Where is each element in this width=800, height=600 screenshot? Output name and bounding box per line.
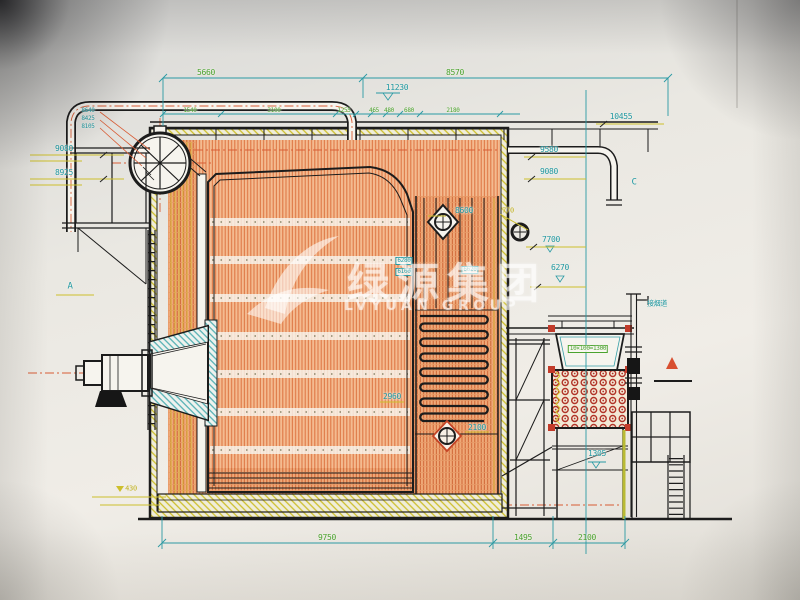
dimension-label: 8570 xyxy=(446,69,464,77)
dimension-label: 1495 xyxy=(514,534,532,542)
dimension-label: 1255 xyxy=(337,108,350,114)
dimension-label: 7700 xyxy=(542,236,560,244)
dimension-label: 2960 xyxy=(383,393,401,401)
dimension-label: 1305 xyxy=(588,450,606,458)
dimension-label: 6620 xyxy=(461,266,478,274)
dimension-label: 465 xyxy=(369,108,379,114)
dimension-labels-layer: 5660857011230154031001255465480680218010… xyxy=(0,0,800,600)
section-marker-c: C xyxy=(631,179,636,188)
photographed-boiler-drawing: 5660857011230154031001255465480680218010… xyxy=(0,0,800,600)
dimension-label: 2180 xyxy=(446,108,459,114)
dimension-label: 8425 xyxy=(81,116,94,122)
dimension-label: 8925 xyxy=(55,169,73,177)
dimension-label: 770 xyxy=(502,208,514,215)
dimension-label: 1540 xyxy=(183,108,196,114)
dimension-label: 2100 xyxy=(468,424,486,432)
dimension-label: 9580 xyxy=(540,146,558,154)
section-marker-a: A xyxy=(67,283,72,292)
dimension-label: 480 xyxy=(384,108,394,114)
dimension-label: 8600 xyxy=(455,207,473,215)
dimension-label: 9080 xyxy=(55,145,73,153)
dimension-label: 8640 xyxy=(81,108,94,114)
dimension-label: 680 xyxy=(404,108,414,114)
dimension-label: 2100 xyxy=(578,534,596,542)
dimension-label: 11230 xyxy=(386,84,409,92)
dimension-label: 6280 xyxy=(395,257,412,265)
dimension-label: 9750 xyxy=(318,534,336,542)
dimension-label: 6100 xyxy=(395,268,412,276)
dimension-label: 6270 xyxy=(551,264,569,272)
pipe-connection-label: 接烟道 xyxy=(647,301,667,308)
dimension-label: 3100 xyxy=(267,108,280,114)
economizer-tube-pitch-label: 10×100=1300 xyxy=(568,345,608,353)
dimension-label: 10455 xyxy=(610,113,633,121)
dimension-label: 430 xyxy=(125,486,137,493)
dimension-label: 9080 xyxy=(540,168,558,176)
dimension-label: 8105 xyxy=(81,124,94,130)
dimension-label: 5660 xyxy=(197,69,215,77)
